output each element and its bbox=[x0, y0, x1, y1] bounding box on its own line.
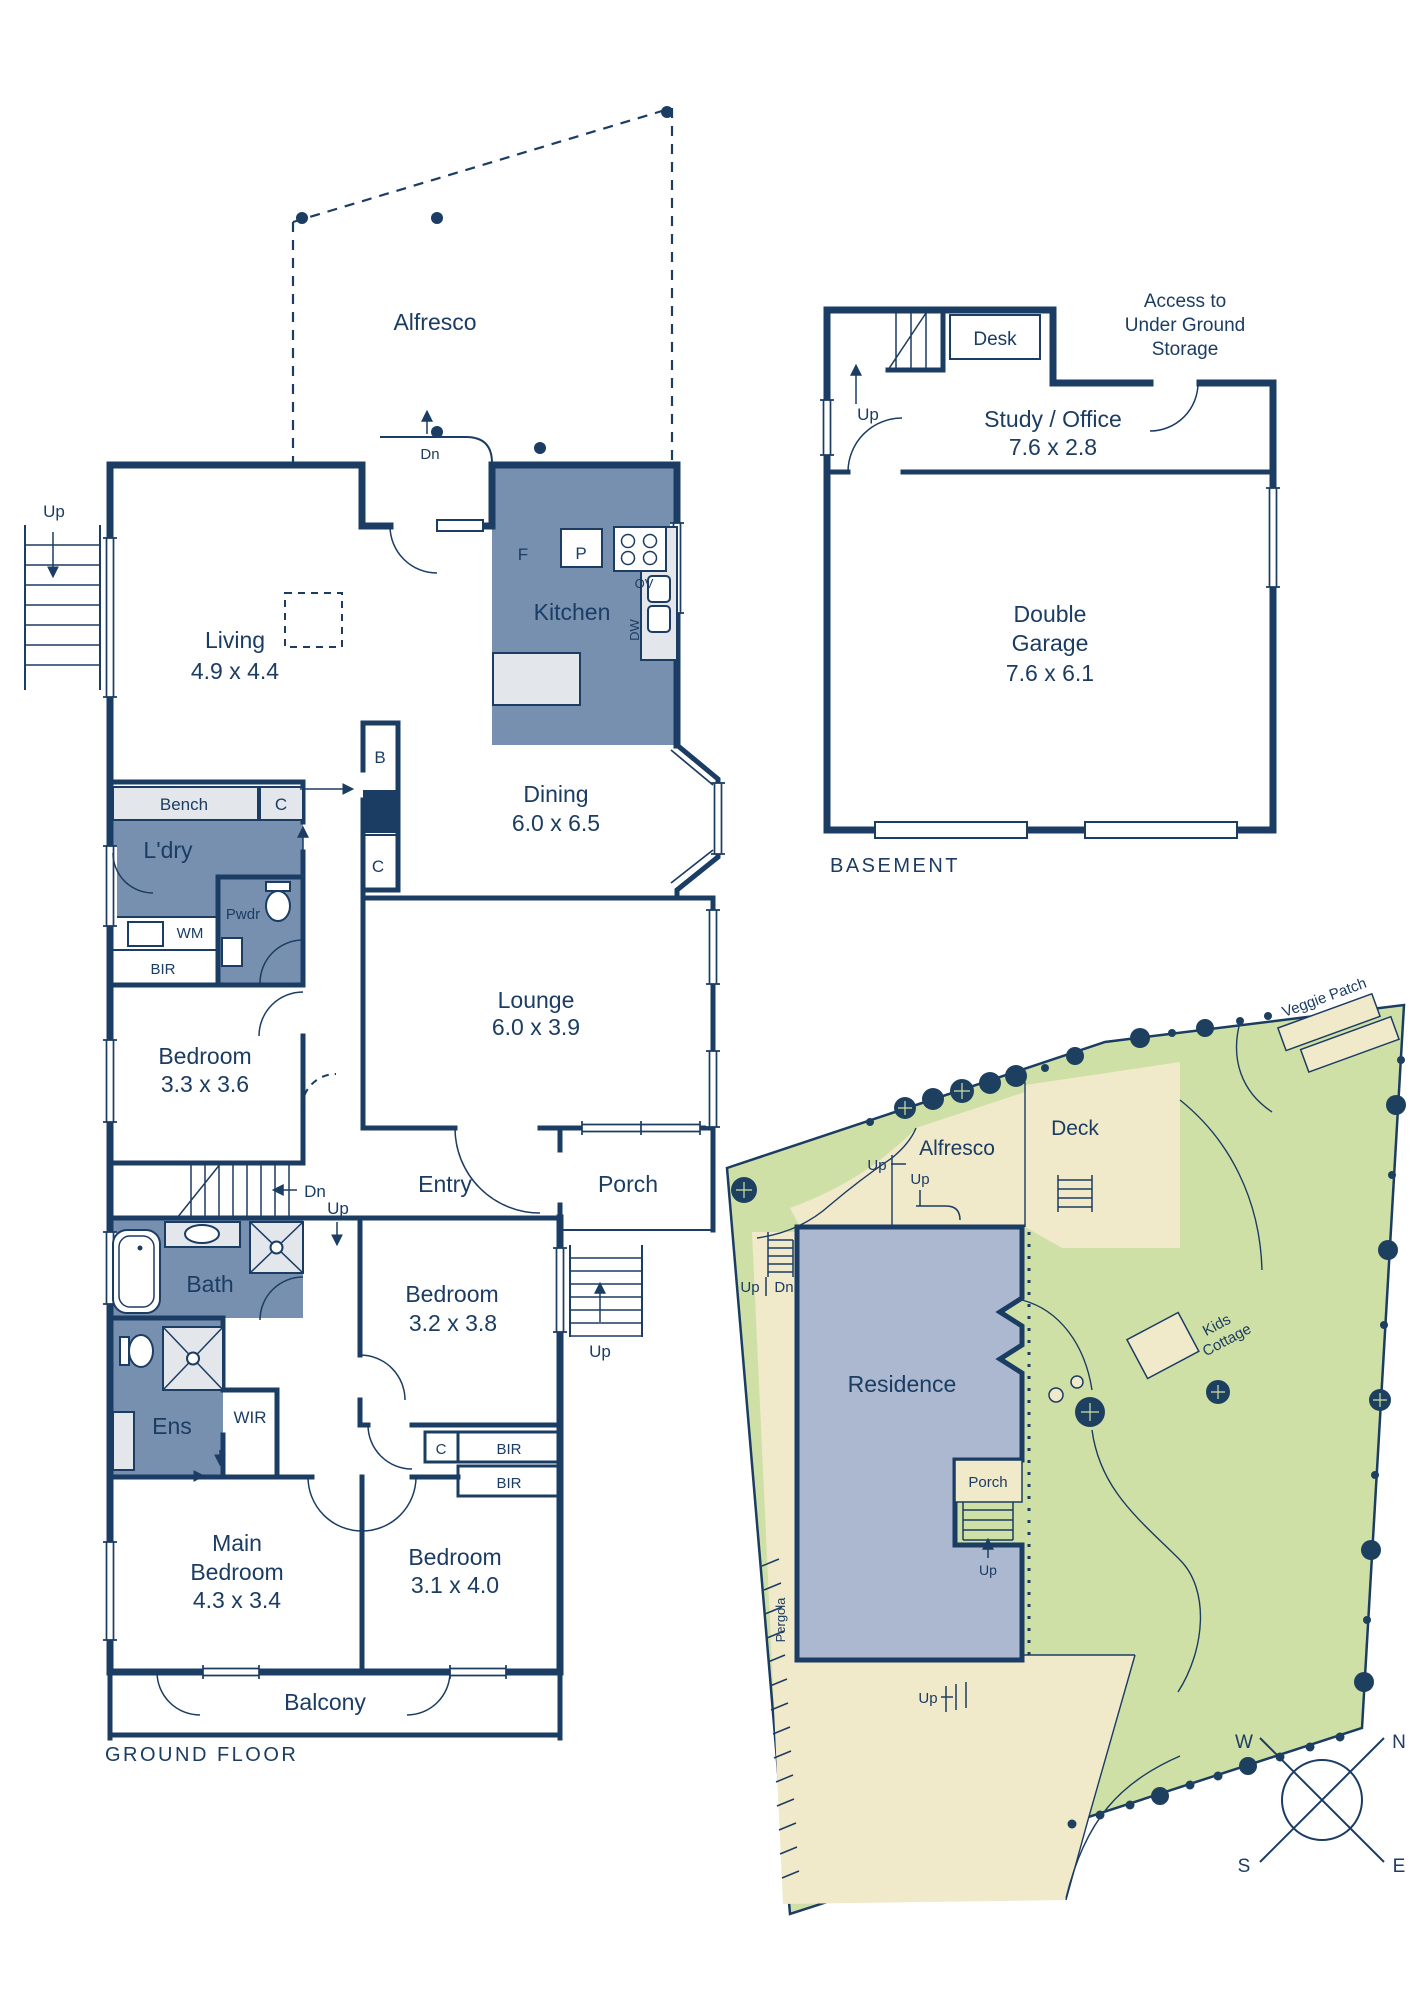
bm-up-label: Up bbox=[857, 405, 879, 424]
gf-entry-label: Entry bbox=[418, 1171, 472, 1197]
site-deck-label: Deck bbox=[1051, 1117, 1099, 1140]
gf-wir-label: WIR bbox=[233, 1408, 266, 1427]
gf-fridge-label: F bbox=[518, 545, 528, 564]
gf-closet-c1-label: C bbox=[275, 795, 287, 814]
gf-closet-c2-label: C bbox=[372, 857, 384, 876]
gf-pantry-label: P bbox=[575, 544, 586, 563]
gf-porch-label: Porch bbox=[598, 1171, 658, 1197]
compass-south-label: S bbox=[1238, 1856, 1251, 1877]
gf-living-label: Living bbox=[205, 627, 265, 653]
site-residence-label: Residence bbox=[848, 1371, 957, 1397]
bm-study-label: Study / Office bbox=[984, 406, 1122, 432]
gf-dining-dims: 6.0 x 6.5 bbox=[512, 810, 600, 836]
bm-title: BASEMENT bbox=[830, 855, 960, 877]
gf-left-stairs-up-label: Up bbox=[43, 502, 65, 521]
site-deck bbox=[1025, 1062, 1180, 1248]
gf-stairs-dn-label: Dn bbox=[304, 1182, 326, 1201]
gf-left-stairs: Up bbox=[25, 502, 100, 690]
gf-bed-rear-dims: 3.3 x 3.6 bbox=[161, 1071, 249, 1097]
gf-bed-front-dims: 3.1 x 4.0 bbox=[411, 1572, 499, 1598]
bm-study-dims: 7.6 x 2.8 bbox=[1009, 434, 1097, 460]
site-pergola: Pergola bbox=[773, 1597, 788, 1643]
gf-lounge-dims: 6.0 x 3.9 bbox=[492, 1014, 580, 1040]
gf-bath-label: Bath bbox=[186, 1271, 233, 1297]
gf-lounge-label: Lounge bbox=[498, 987, 575, 1013]
bm-access-label-3: Storage bbox=[1152, 339, 1219, 360]
floorplan-svg: Residence Porch Up Alfresco Deck Up Up U… bbox=[0, 0, 1413, 2000]
gf-dishwasher-label: DW bbox=[627, 618, 642, 640]
gf-porch-up-label: Up bbox=[589, 1342, 611, 1361]
gf-porch-steps: Up bbox=[570, 1245, 642, 1361]
gf-wm-label: WM bbox=[177, 925, 204, 942]
bm-access-label-2: Under Ground bbox=[1125, 315, 1245, 336]
site-up-label-4: Up bbox=[918, 1690, 937, 1707]
gf-bir3-label: BIR bbox=[496, 1475, 521, 1492]
site-up-label-3: Up bbox=[740, 1279, 759, 1296]
gf-living-skylight bbox=[285, 593, 342, 647]
gf-bed-mid-label: Bedroom bbox=[405, 1281, 498, 1307]
site-porch-label: Porch bbox=[968, 1474, 1007, 1491]
gf-main-bed-label-2: Bedroom bbox=[190, 1559, 283, 1585]
gf-bed-rear-label: Bedroom bbox=[158, 1043, 251, 1069]
site-up-label-1: Up bbox=[867, 1157, 886, 1174]
compass-east-label: E bbox=[1393, 1856, 1406, 1877]
gf-bir2-label: BIR bbox=[496, 1441, 521, 1458]
site-pergola-label: Pergola bbox=[773, 1597, 788, 1643]
gf-title: GROUND FLOOR bbox=[105, 1744, 298, 1766]
gf-alfresco-outline: Alfresco bbox=[293, 106, 673, 465]
gf-stairs-up-label: Up bbox=[327, 1199, 349, 1218]
site-dn-label: Dn bbox=[774, 1279, 793, 1296]
site-residence bbox=[797, 1227, 1022, 1660]
site-up-label-2: Up bbox=[910, 1171, 929, 1188]
gf-bed-mid-dims: 3.2 x 3.8 bbox=[409, 1310, 497, 1336]
gf-balcony-label: Balcony bbox=[284, 1689, 366, 1715]
compass-west-label: W bbox=[1235, 1732, 1253, 1753]
gf-alfresco-label: Alfresco bbox=[393, 309, 476, 335]
gf-bench-label: Bench bbox=[160, 795, 208, 814]
site-alfresco-label: Alfresco bbox=[919, 1137, 995, 1160]
gf-oven-label: OV bbox=[635, 576, 654, 591]
bm-garage-dims: 7.6 x 6.1 bbox=[1006, 660, 1094, 686]
bm-garage-label-2: Garage bbox=[1012, 630, 1089, 656]
gf-main-bed-label-1: Main bbox=[212, 1530, 262, 1556]
gf-ens-label: Ens bbox=[152, 1413, 192, 1439]
basement-plan: Up Desk Access to Under Ground Storage S… bbox=[820, 291, 1280, 877]
bm-access-label-1: Access to bbox=[1144, 291, 1226, 312]
site-plan: Residence Porch Up Alfresco Deck Up Up U… bbox=[727, 971, 1406, 1914]
gf-closet-b-label: B bbox=[374, 748, 385, 767]
bm-desk-label: Desk bbox=[973, 329, 1017, 350]
gf-dining-label: Dining bbox=[523, 781, 588, 807]
gf-bed-front-label: Bedroom bbox=[408, 1544, 501, 1570]
bm-garage-label-1: Double bbox=[1014, 601, 1087, 627]
gf-closet-c3-label: C bbox=[436, 1441, 447, 1458]
gf-main-bed-dims: 4.3 x 3.4 bbox=[193, 1587, 281, 1613]
gf-alfresco-dn-label: Dn bbox=[420, 446, 439, 463]
gf-pwdr-label: Pwdr bbox=[226, 906, 260, 923]
floorplan-page: Residence Porch Up Alfresco Deck Up Up U… bbox=[0, 0, 1413, 2000]
powder-area bbox=[218, 877, 303, 985]
ground-floor-plan: Alfresco Dn bbox=[25, 106, 725, 1766]
compass-north-label: N bbox=[1392, 1732, 1406, 1753]
gf-laundry-label: L'dry bbox=[143, 837, 193, 863]
gf-bir1-label: BIR bbox=[150, 961, 175, 978]
site-porch-up-label: Up bbox=[979, 1562, 997, 1578]
gf-living-dims: 4.9 x 4.4 bbox=[191, 658, 279, 684]
gf-kitchen-label: Kitchen bbox=[534, 599, 611, 625]
